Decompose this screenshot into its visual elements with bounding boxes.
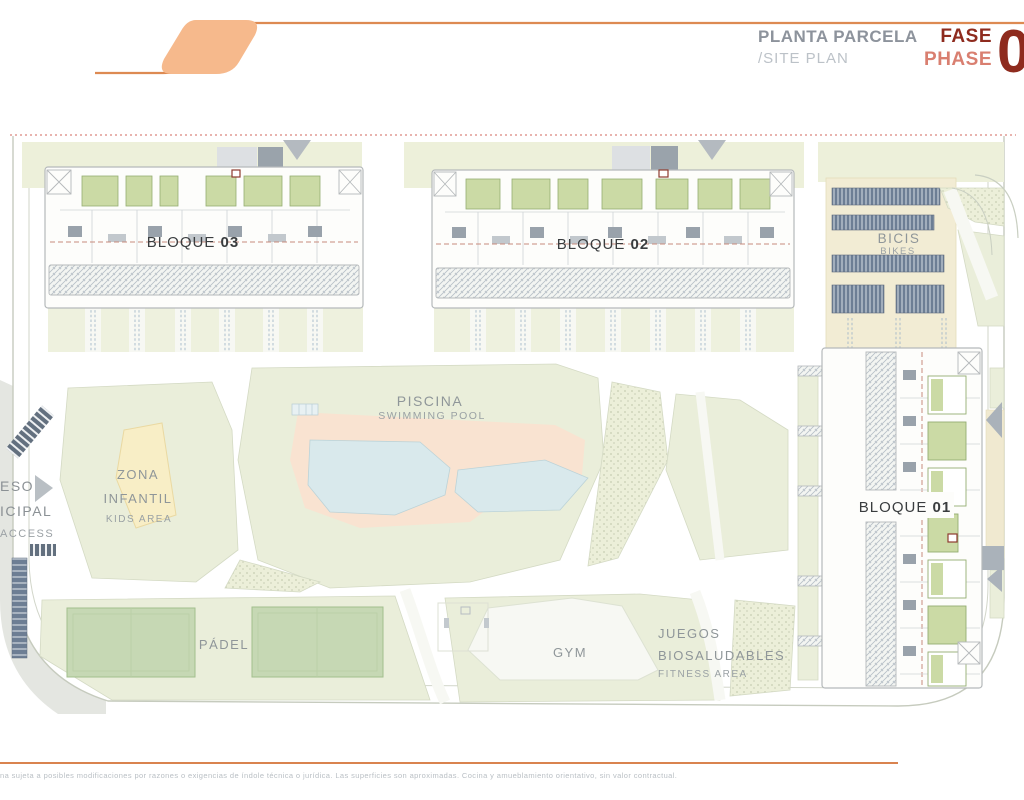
terrace-strip xyxy=(436,268,790,298)
access-arrow-right xyxy=(35,475,53,502)
phase-label-es: FASE xyxy=(922,27,992,46)
label-fitness-es-1: JUEGOS xyxy=(658,626,720,641)
entrance-marker xyxy=(948,534,957,542)
label-kids-es-1: ZONA xyxy=(117,467,159,482)
building-bloque-02 xyxy=(432,146,794,308)
label-access-2: ICIPAL xyxy=(0,503,52,519)
label-kids-en: KIDS AREA xyxy=(106,514,172,525)
street-parking-strip xyxy=(12,558,27,658)
phase-label-en: PHASE xyxy=(922,50,992,69)
sports-zone xyxy=(40,590,720,702)
label-gym: GYM xyxy=(553,645,587,660)
kids-area-zone xyxy=(60,382,238,582)
footer-rule xyxy=(0,762,898,764)
entrance-marker xyxy=(232,170,240,177)
crosswalk xyxy=(30,544,56,556)
building-bloque-03 xyxy=(45,147,363,308)
phase-label: FASE PHASE xyxy=(922,27,992,69)
label-fitness-es-2: BIOSALUDABLES xyxy=(658,648,785,663)
terrace-strip xyxy=(866,522,896,686)
site-plan-page: { "header": { "title_primary": "PLANTA P… xyxy=(0,0,1024,800)
bike-rack xyxy=(832,285,884,313)
plan-title-en: /SITE PLAN xyxy=(758,51,928,66)
bike-rack xyxy=(832,255,944,272)
label-access-1: ESO xyxy=(0,478,34,494)
terrace-strip xyxy=(49,265,359,295)
label-bikes-es: BICIS xyxy=(878,231,921,246)
building-bloque-01 xyxy=(798,348,982,688)
label-bikes-en: BIKES xyxy=(880,246,916,257)
bike-parking-zone xyxy=(826,178,956,352)
label-bloque-03: BLOQUE 03 xyxy=(147,234,239,251)
pool-steps xyxy=(292,404,318,415)
label-kids-es-2: INFANTIL xyxy=(103,491,172,506)
phase-number: 0 xyxy=(997,22,1024,82)
label-pool-es: PISCINA xyxy=(397,393,464,409)
label-bloque-02: BLOQUE 02 xyxy=(557,236,649,253)
logo-parallelogram xyxy=(162,20,257,74)
label-fitness-en: FITNESS AREA xyxy=(658,669,748,680)
entrance-marker xyxy=(659,170,668,177)
padel-court xyxy=(67,608,195,677)
footer-disclaimer: na sujeta a posibles modificaciones por … xyxy=(0,771,1024,780)
label-padel: PÁDEL xyxy=(199,637,249,652)
green-roofs xyxy=(466,179,770,209)
utility-box xyxy=(982,546,1004,570)
label-bloque-01: BLOQUE 01 xyxy=(859,499,951,516)
plan-title-es: PLANTA PARCELA xyxy=(758,28,928,45)
plan-title: PLANTA PARCELA /SITE PLAN xyxy=(758,28,928,66)
terrace-strip xyxy=(866,352,896,490)
label-access-3: ACCESS xyxy=(0,528,54,540)
bike-rack xyxy=(896,285,944,313)
site-plan-drawing xyxy=(0,130,1024,770)
bike-rack xyxy=(832,188,940,205)
padel-court xyxy=(252,607,383,677)
label-pool-en: SWIMMING POOL xyxy=(378,410,486,422)
bike-rack xyxy=(832,215,934,230)
